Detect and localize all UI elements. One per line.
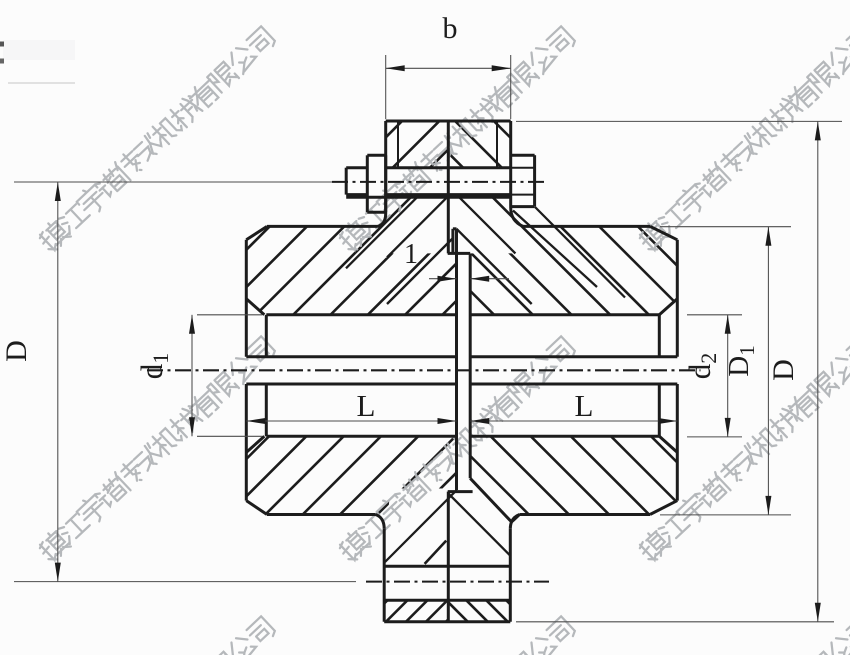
svg-text:D: D <box>767 359 800 381</box>
svg-text:1: 1 <box>404 239 418 270</box>
svg-text:L: L <box>575 388 594 423</box>
svg-text:b: b <box>443 12 458 45</box>
svg-text:D: D <box>0 340 33 362</box>
svg-text:L: L <box>357 388 376 423</box>
